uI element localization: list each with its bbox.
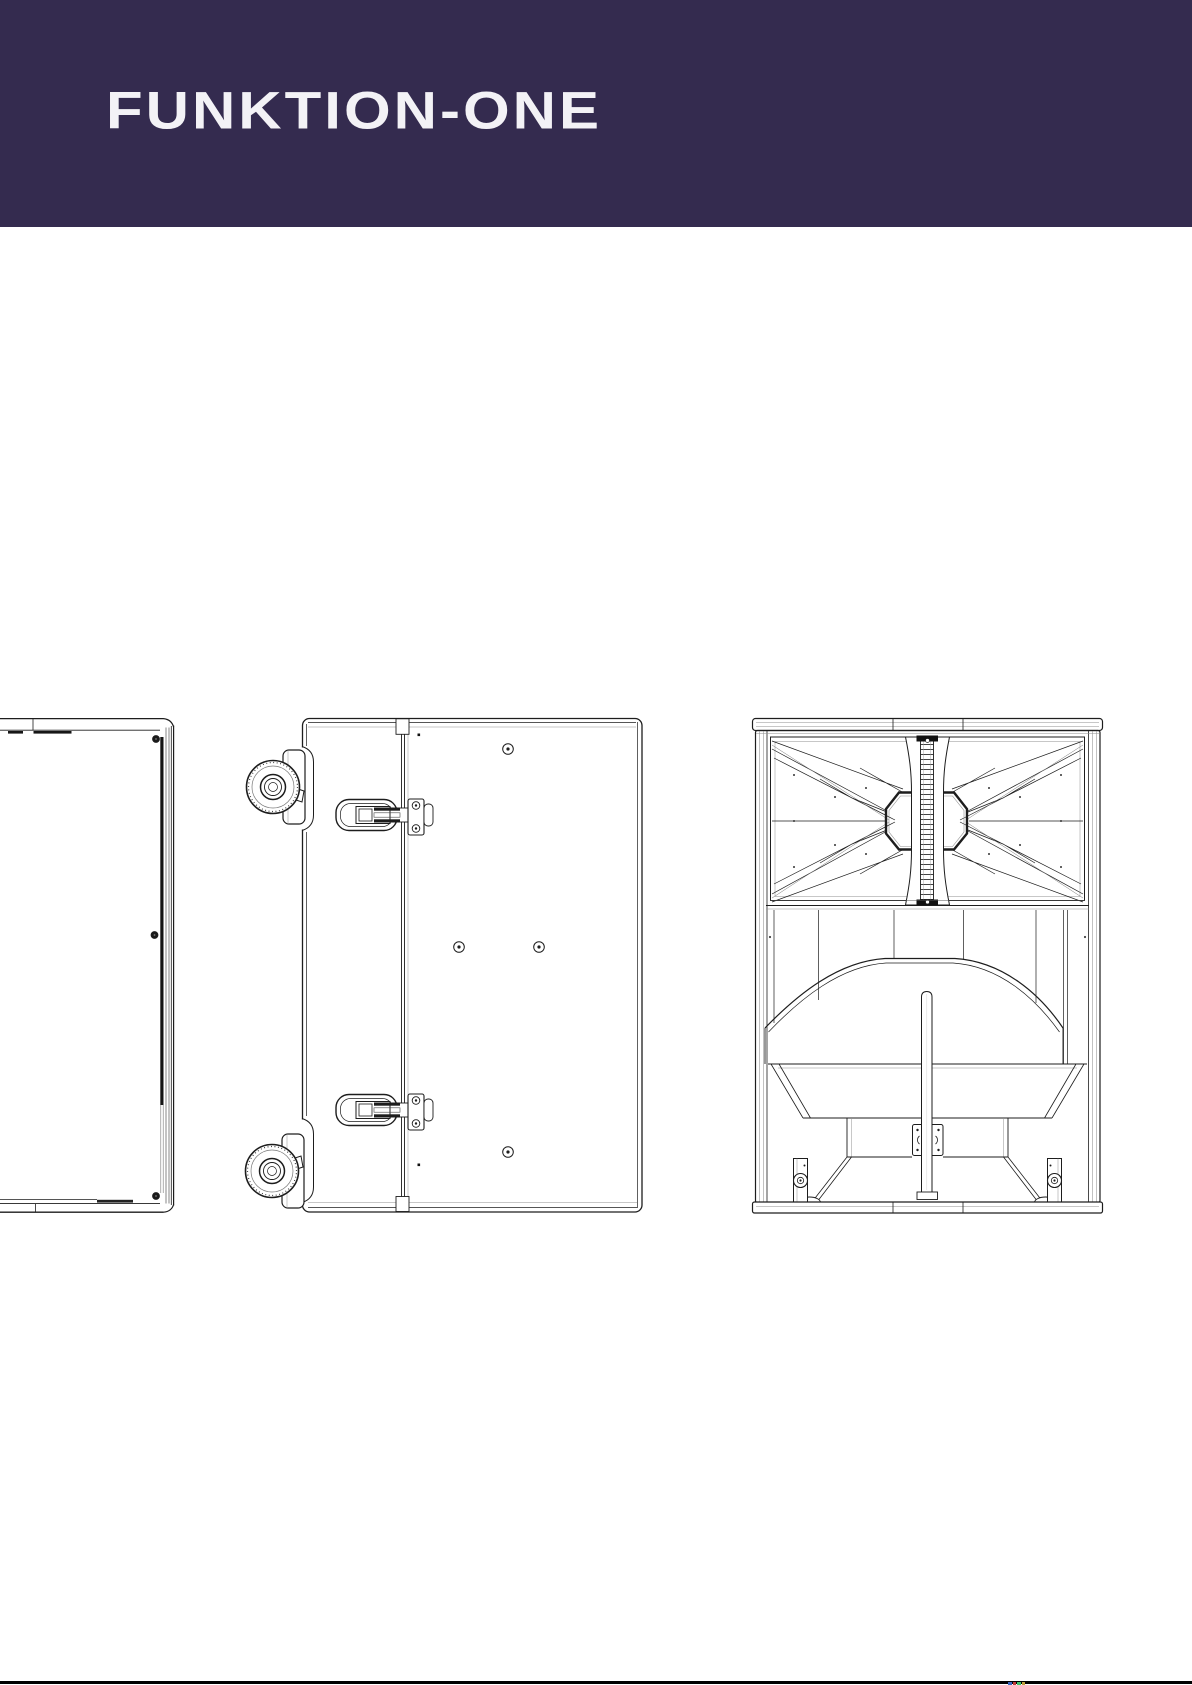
caster-wheel-top	[247, 750, 306, 824]
butterfly-latch-bottom	[336, 1094, 433, 1130]
technical-drawings	[0, 0, 1192, 1685]
front-view-drawing	[753, 719, 1103, 1214]
side-view-drawing	[246, 719, 643, 1213]
mid-high-horn-section	[766, 736, 1089, 910]
butterfly-latch-top	[336, 799, 433, 835]
left-side-view-drawing	[0, 719, 174, 1213]
center-driver-column	[906, 736, 950, 906]
caster-wheel-bottom	[246, 1134, 305, 1208]
bass-horn-section	[765, 910, 1087, 1203]
lid-seam-tab-bottom	[396, 1197, 409, 1212]
center-divider-bar	[917, 992, 938, 1200]
lid-seam-tab-top	[396, 719, 409, 735]
